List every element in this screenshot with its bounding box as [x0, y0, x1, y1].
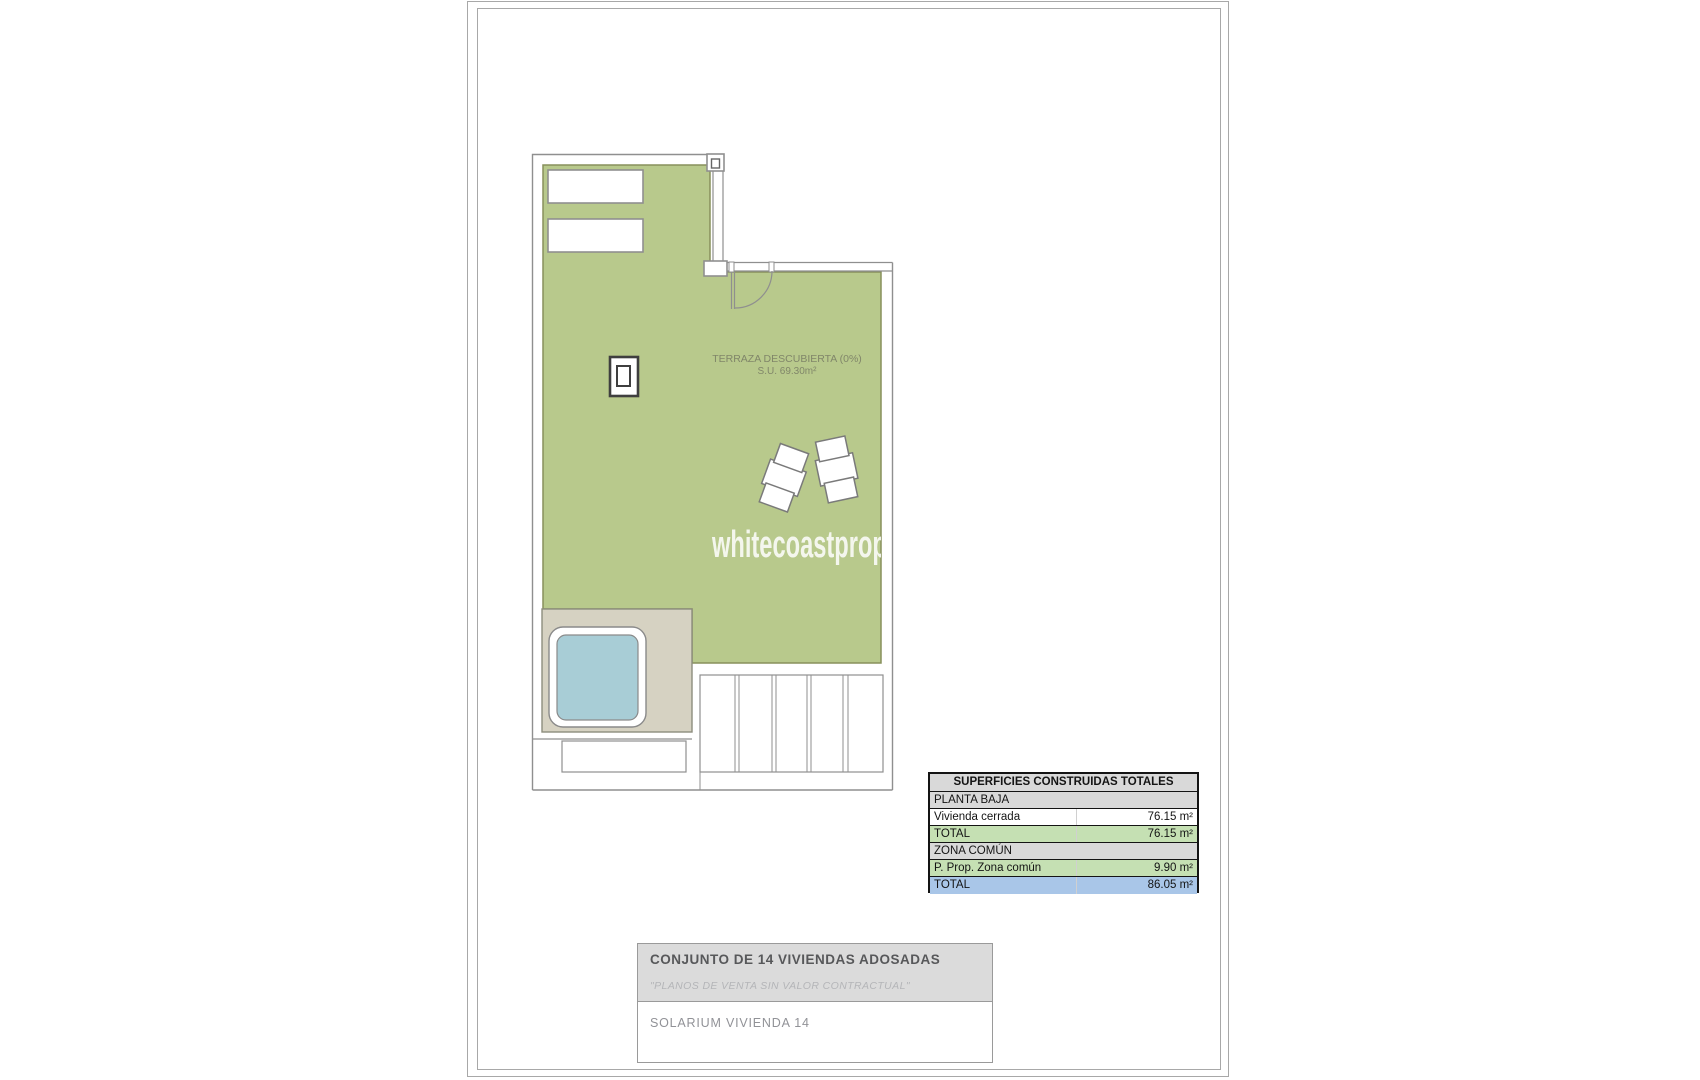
pillar-core: [712, 159, 720, 168]
title-block: CONJUNTO DE 14 VIVIENDAS ADOSADAS "PLANO…: [637, 943, 993, 1063]
planter-box: [548, 219, 643, 252]
areas-table-header: SUPERFICIES CONSTRUIDAS TOTALES: [930, 774, 1197, 792]
door-jamb: [729, 262, 734, 272]
door-jamb: [769, 262, 774, 272]
drawing-title: SOLARIUM VIVIENDA 14: [650, 1016, 980, 1030]
areas-table: SUPERFICIES CONSTRUIDAS TOTALES PLANTA B…: [928, 772, 1199, 893]
row-value: 86.05 m²: [1076, 877, 1193, 894]
terrace-label: TERRAZA DESCUBIERTA (0%): [712, 353, 862, 365]
table-row: TOTAL 76.15 m²: [930, 826, 1197, 843]
row-value: 76.15 m²: [1076, 826, 1193, 842]
title-block-header: CONJUNTO DE 14 VIVIENDAS ADOSADAS "PLANO…: [638, 944, 992, 1002]
slat-area: [700, 675, 883, 772]
row-value: 9.90 m²: [1076, 860, 1193, 876]
row-value: [1076, 843, 1193, 859]
walkway: [562, 741, 686, 772]
table-row: P. Prop. Zona común 9.90 m²: [930, 860, 1197, 877]
row-value: 76.15 m²: [1076, 809, 1193, 825]
row-label: TOTAL: [934, 826, 1076, 842]
table-row: PLANTA BAJA: [930, 792, 1197, 809]
title-block-body: SOLARIUM VIVIENDA 14: [638, 1002, 992, 1030]
terrace-area-label: S.U. 69.30m²: [758, 366, 818, 377]
row-label: PLANTA BAJA: [934, 792, 1076, 808]
row-label: ZONA COMÚN: [934, 843, 1076, 859]
table-row: ZONA COMÚN: [930, 843, 1197, 860]
watermark-text: whitecoastproperties: [711, 524, 950, 566]
pillar: [704, 261, 727, 276]
row-label: Vivienda cerrada: [934, 809, 1076, 825]
row-label: TOTAL: [934, 877, 1076, 894]
skylight-inner: [617, 366, 630, 386]
row-value: [1076, 792, 1193, 808]
project-title: CONJUNTO DE 14 VIVIENDAS ADOSADAS: [650, 952, 980, 967]
floor-plan: whitecoastproperties TERRAZA DESCUBIERTA…: [0, 0, 1700, 1080]
planter-box: [548, 170, 643, 203]
pool-water: [557, 635, 638, 720]
areas-table-header-label: SUPERFICIES CONSTRUIDAS TOTALES: [934, 774, 1193, 791]
table-row: TOTAL 86.05 m²: [930, 877, 1197, 894]
row-label: P. Prop. Zona común: [934, 860, 1076, 876]
wall-top-right: [727, 263, 893, 272]
wall-center: [713, 170, 723, 262]
disclaimer-text: "PLANOS DE VENTA SIN VALOR CONTRACTUAL": [650, 980, 980, 992]
table-row: Vivienda cerrada 76.15 m²: [930, 809, 1197, 826]
